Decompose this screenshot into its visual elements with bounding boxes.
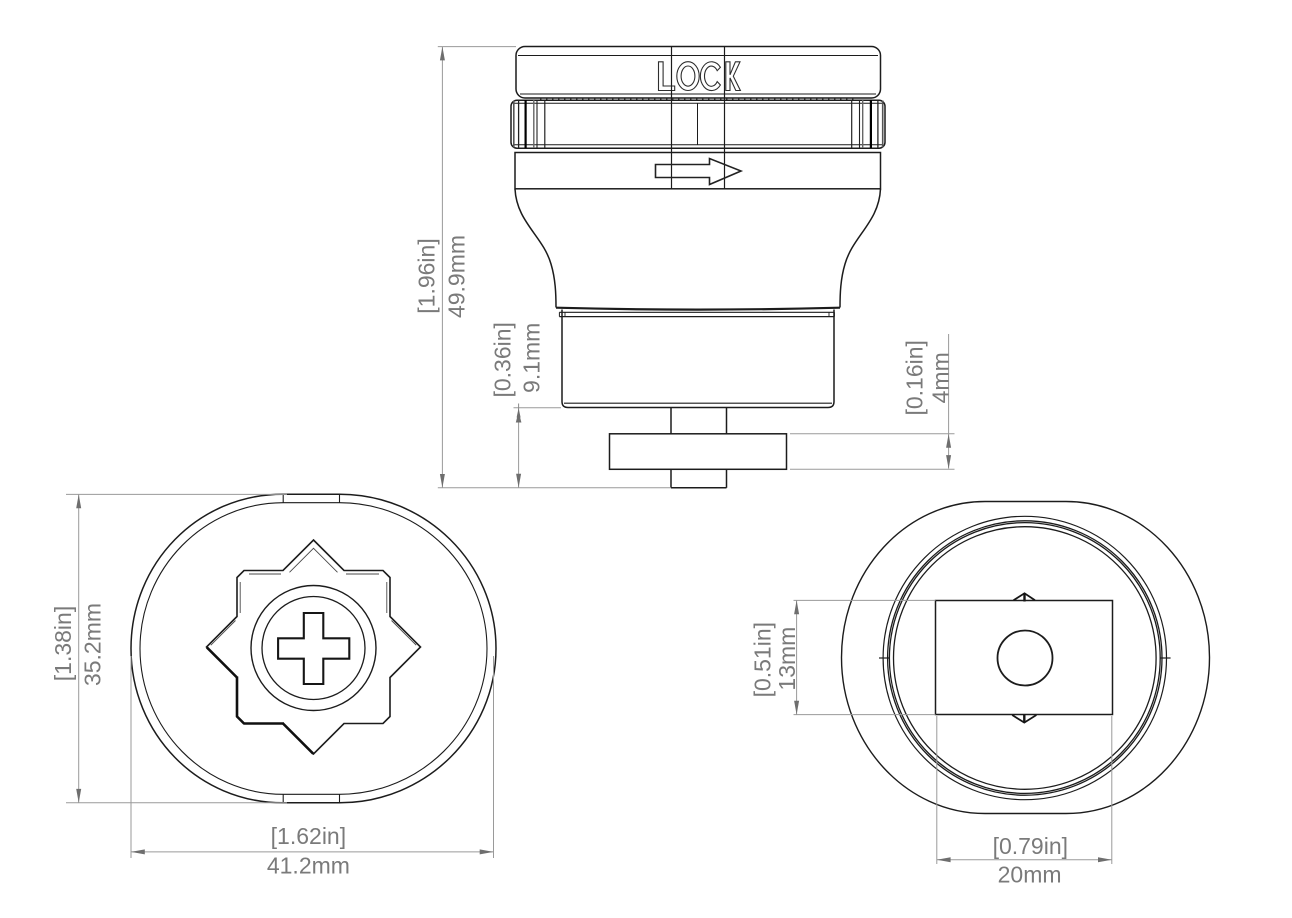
svg-text:[1.96in]: [1.96in] bbox=[414, 238, 440, 313]
svg-text:[1.38in]: [1.38in] bbox=[50, 606, 76, 681]
svg-text:20mm: 20mm bbox=[998, 862, 1062, 888]
svg-text:[0.16in]: [0.16in] bbox=[901, 340, 927, 415]
svg-text:[1.62in]: [1.62in] bbox=[271, 823, 346, 849]
svg-text:13mm: 13mm bbox=[774, 627, 800, 691]
svg-text:[0.79in]: [0.79in] bbox=[993, 833, 1068, 859]
svg-text:[0.51in]: [0.51in] bbox=[749, 622, 775, 697]
svg-text:35.2mm: 35.2mm bbox=[80, 603, 106, 686]
svg-text:[0.36in]: [0.36in] bbox=[490, 322, 516, 397]
svg-text:49.9mm: 49.9mm bbox=[444, 235, 470, 318]
svg-text:9.1mm: 9.1mm bbox=[519, 323, 545, 393]
svg-text:4mm: 4mm bbox=[928, 352, 954, 403]
svg-text:41.2mm: 41.2mm bbox=[267, 853, 350, 879]
